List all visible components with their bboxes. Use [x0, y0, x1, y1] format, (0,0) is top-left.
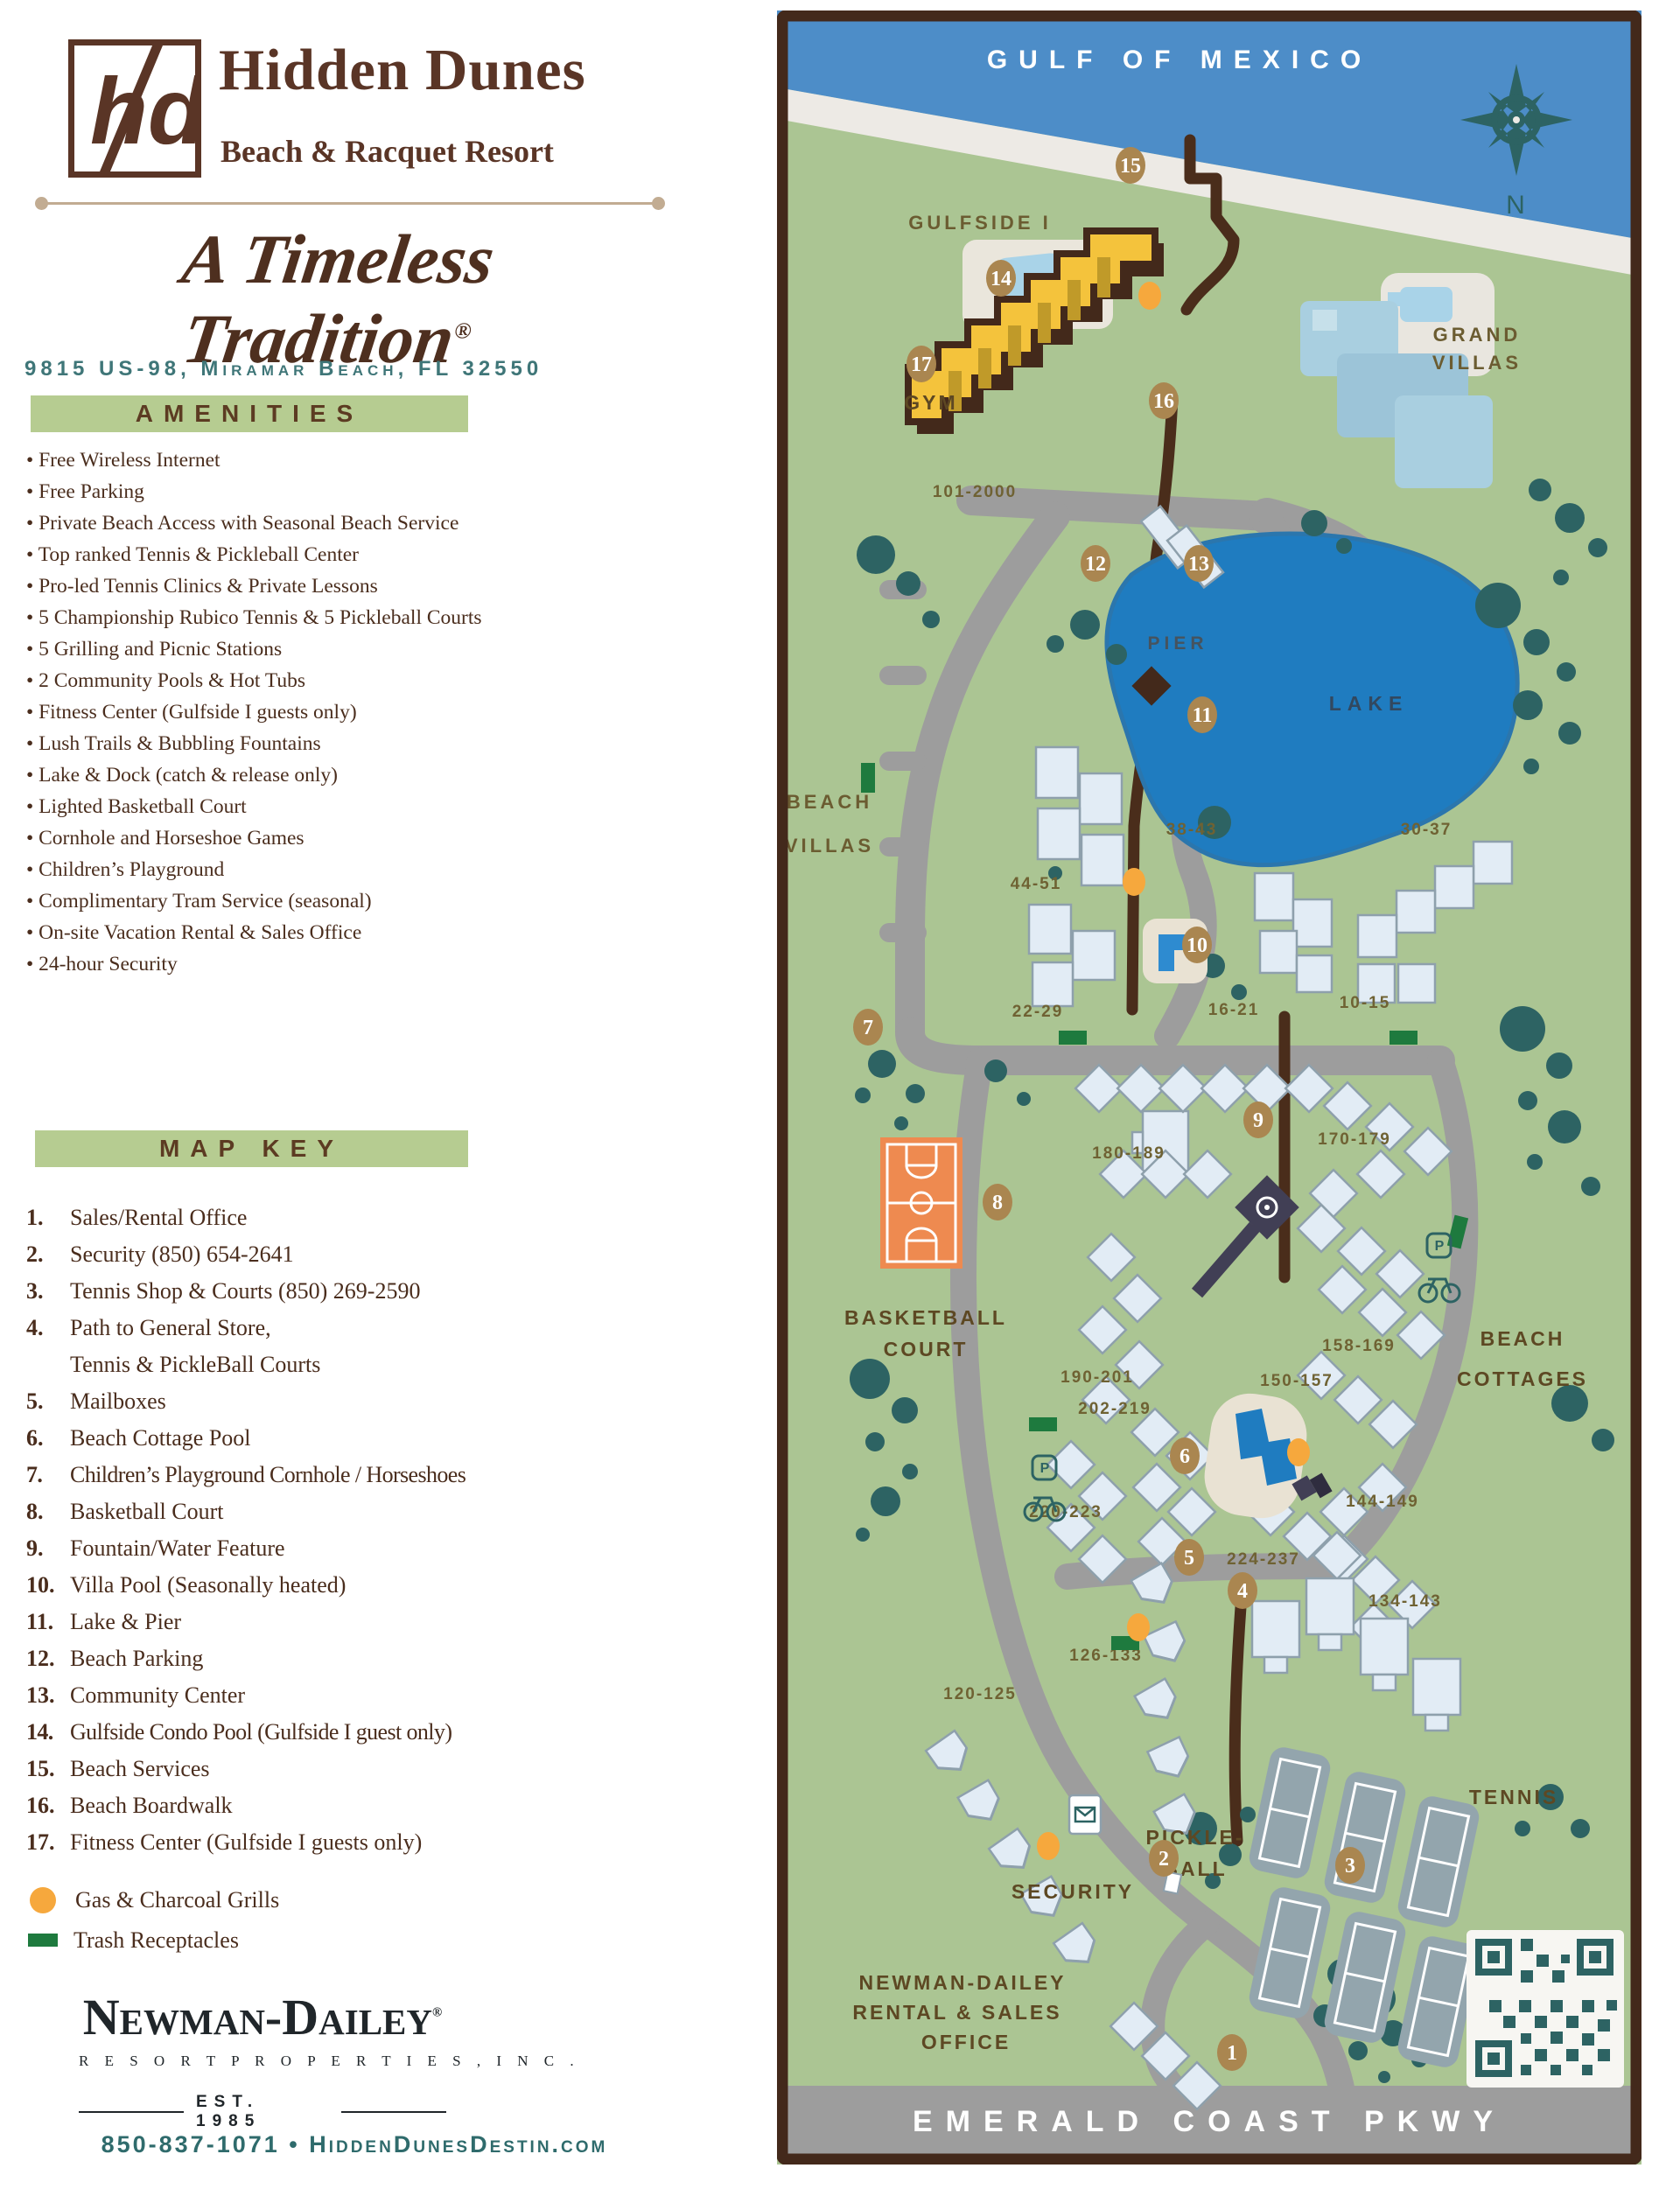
svg-text:2: 2: [1158, 1848, 1169, 1871]
map-key-item: 10.Villa Pool (Seasonally heated): [26, 1568, 534, 1605]
gym-label: GYM: [904, 391, 957, 414]
unit-range: 190-201: [1060, 1368, 1134, 1387]
amenity-item: Complimentary Tram Service (seasonal): [26, 885, 516, 917]
company-name: Newman-Dailey: [83, 1989, 432, 2046]
est-line-right: [341, 2111, 446, 2113]
svg-text:11: 11: [1193, 704, 1213, 727]
basketball-court: [880, 1137, 962, 1269]
svg-text:8: 8: [992, 1192, 1003, 1214]
svg-text:7: 7: [863, 1017, 873, 1039]
map-marker-5: 5: [1174, 1539, 1204, 1576]
unit-range: 224-237: [1227, 1550, 1300, 1569]
amenity-item: Lake & Dock (catch & release only): [26, 759, 516, 791]
map-marker-2: 2: [1149, 1840, 1179, 1877]
basketball-label: BASKETBALL: [844, 1306, 1007, 1329]
amenity-item: Pro-led Tennis Clinics & Private Lessons: [26, 570, 516, 602]
svg-text:4: 4: [1237, 1580, 1248, 1603]
unit-range: 120-125: [943, 1685, 1017, 1703]
map-key-list: 1.Sales/Rental Office 2.Security (850) 6…: [26, 1200, 534, 1862]
unit-range: 202-219: [1078, 1400, 1151, 1418]
footer-company: Newman-Dailey®: [79, 1988, 446, 2046]
grand-villas-label2: VILLAS: [1432, 352, 1522, 374]
monogram-letters: hd: [90, 58, 195, 164]
map-marker-9: 9: [1243, 1101, 1273, 1138]
est-text: EST. 1985: [196, 2093, 329, 2131]
gulf-label: GULF OF MEXICO: [987, 45, 1372, 74]
map-key-item: 3.Tennis Shop & Courts (850) 269-2590: [26, 1274, 534, 1311]
map-marker-8: 8: [983, 1184, 1012, 1220]
unit-range: 150-157: [1260, 1372, 1333, 1390]
tennis-label: TENNIS: [1469, 1786, 1558, 1808]
hd-monogram-icon: hd: [74, 45, 195, 171]
map-key-item: 14.Gulfside Condo Pool (Gulfside I guest…: [26, 1715, 534, 1752]
map-key-item: 6.Beach Cottage Pool: [26, 1421, 534, 1458]
registered-mark: ®: [452, 318, 473, 343]
registered-mark: ®: [432, 2006, 442, 2020]
office-label: NEWMAN-DAILEY: [858, 1971, 1066, 1994]
map-marker-3: 3: [1335, 1847, 1365, 1884]
unit-range: 101-2000: [933, 483, 1017, 501]
lake-label: LAKE: [1329, 692, 1409, 715]
est-line-left: [79, 2111, 184, 2113]
unit-range: 170-179: [1318, 1130, 1391, 1149]
compass-north-label: N: [1506, 191, 1527, 220]
footer-contact: 850-837-1071 • HiddenDunesDestin.com: [9, 2131, 700, 2158]
grill-icon: [30, 1887, 56, 1913]
svg-text:5: 5: [1184, 1547, 1194, 1570]
map-key-item: 12.Beach Parking: [26, 1641, 534, 1678]
divider-line: [38, 202, 661, 205]
map-marker-1: 1: [1217, 2034, 1247, 2071]
basketball-label2: COURT: [884, 1338, 969, 1360]
beach-villas-label: BEACH: [787, 791, 872, 813]
amenity-item: Free Parking: [26, 476, 516, 507]
map-marker-4: 4: [1228, 1572, 1257, 1609]
map-key-header: MAP KEY: [35, 1130, 468, 1167]
unit-range: 30-37: [1401, 821, 1452, 839]
brand-subtitle: Beach & Racquet Resort: [220, 133, 710, 170]
brand-title: Hidden Dunes: [219, 37, 709, 104]
amenity-item: 2 Community Pools & Hot Tubs: [26, 665, 516, 696]
svg-text:16: 16: [1153, 390, 1174, 413]
amenities-list: Free Wireless Internet Free Parking Priv…: [26, 444, 516, 980]
amenity-item: Cornhole and Horseshoe Games: [26, 822, 516, 854]
beach-cottages-label: BEACH: [1480, 1327, 1565, 1350]
map-key-item: 4.Path to General Store,: [26, 1311, 534, 1347]
amenity-item: Free Wireless Internet: [26, 444, 516, 476]
pier-label: PIER: [1147, 633, 1207, 654]
map-key-item: 13.Community Center: [26, 1678, 534, 1715]
svg-text:6: 6: [1179, 1445, 1190, 1468]
unit-range: 44-51: [1011, 875, 1062, 893]
map-key-item-continuation: Tennis & PickleBall Courts: [26, 1347, 534, 1384]
map-marker-10: 10: [1182, 927, 1212, 963]
map-key-item: 1.Sales/Rental Office: [26, 1200, 534, 1237]
divider-dot-left: [35, 197, 48, 210]
amenity-item: 5 Championship Rubico Tennis & 5 Pickleb…: [26, 602, 516, 633]
legend-trash: Trash Receptacles: [26, 1921, 516, 1962]
unit-range: 180-189: [1092, 1144, 1165, 1163]
map-key-legend: Gas & Charcoal Grills Trash Receptacles: [26, 1881, 516, 1962]
grand-villas-label: GRAND: [1433, 324, 1522, 346]
svg-text:13: 13: [1188, 553, 1209, 576]
map-key-item: 9.Fountain/Water Feature: [26, 1531, 534, 1568]
map-key-item: 2.Security (850) 654-2641: [26, 1237, 534, 1274]
svg-text:12: 12: [1085, 553, 1106, 576]
amenity-item: Lighted Basketball Court: [26, 791, 516, 822]
legend-label: Trash Receptacles: [73, 1921, 239, 1962]
map-canvas: GULF OF MEXICO N EMERAL: [777, 10, 1641, 2165]
map-marker-13: 13: [1184, 545, 1214, 582]
qr-code: [1466, 1930, 1624, 2088]
amenity-item: 24-hour Security: [26, 948, 516, 980]
amenity-item: Private Beach Access with Seasonal Beach…: [26, 507, 516, 539]
amenity-item: Lush Trails & Bubbling Fountains: [26, 728, 516, 759]
amenity-item: Children’s Playground: [26, 854, 516, 885]
office-label3: OFFICE: [921, 2031, 1011, 2053]
unit-range: 10-15: [1340, 994, 1391, 1012]
map-marker-15: 15: [1116, 147, 1145, 184]
resort-map-page: hd Hidden Dunes Beach & Racquet Resort A…: [0, 0, 1680, 2203]
unit-range: 158-169: [1322, 1337, 1396, 1355]
map-key-item: 8.Basketball Court: [26, 1494, 534, 1531]
map-key-item: 5.Mailboxes: [26, 1384, 534, 1421]
unit-range: 16-21: [1208, 1001, 1260, 1019]
trash-icon: [28, 1934, 58, 1947]
unit-range: 144-149: [1346, 1493, 1419, 1511]
map-key-item: 7.Children’s Playground Cornhole / Horse…: [26, 1458, 534, 1494]
map-marker-16: 16: [1149, 382, 1179, 419]
resort-map: GULF OF MEXICO N EMERAL: [777, 10, 1641, 2165]
amenity-item: 5 Grilling and Picnic Stations: [26, 633, 516, 665]
amenity-item: Fitness Center (Gulfside I guests only): [26, 696, 516, 728]
divider-dot-right: [652, 197, 665, 210]
unit-range: 134-143: [1368, 1592, 1442, 1611]
parking-icon-letter: P: [1435, 1239, 1445, 1254]
parking-icon-letter: P: [1040, 1461, 1050, 1476]
svg-text:17: 17: [911, 353, 932, 376]
office-label2: RENTAL & SALES: [852, 2001, 1061, 2024]
map-key-item: 15.Beach Services: [26, 1752, 534, 1788]
security-label: SECURITY: [1011, 1880, 1134, 1903]
footer-company-subtitle: R E S O R T P R O P E R T I E S , I N C …: [79, 2053, 446, 2070]
tagline-text: A Timeless Tradition: [178, 221, 499, 378]
footer-established: EST. 1985: [79, 2093, 446, 2131]
map-marker-12: 12: [1081, 545, 1110, 582]
map-marker-11: 11: [1187, 696, 1217, 733]
amenity-item: On-site Vacation Rental & Sales Office: [26, 917, 516, 948]
map-marker-6: 6: [1170, 1437, 1200, 1474]
unit-range: 22-29: [1012, 1003, 1064, 1021]
map-key-item: 11.Lake & Pier: [26, 1605, 534, 1641]
svg-text:10: 10: [1186, 934, 1207, 957]
map-key-item: 16.Beach Boardwalk: [26, 1788, 534, 1825]
svg-text:9: 9: [1253, 1109, 1263, 1132]
gulfside-label: GULFSIDE I: [908, 212, 1051, 234]
svg-text:15: 15: [1120, 155, 1141, 178]
parkway-label: EMERALD COAST PKWY: [913, 2105, 1506, 2138]
beach-villas-label2: VILLAS: [785, 835, 874, 857]
map-marker-7: 7: [853, 1009, 883, 1046]
brand-tagline: A Timeless Tradition®: [15, 220, 650, 380]
resort-address: 9815 US-98, Miramar Beach, FL 32550: [24, 357, 584, 381]
mailbox-kiosk-icon: [1069, 1795, 1101, 1834]
svg-text:14: 14: [990, 268, 1011, 290]
beach-cottages-label2: COTTAGES: [1457, 1367, 1588, 1390]
svg-text:1: 1: [1227, 2042, 1237, 2065]
map-marker-17: 17: [906, 346, 936, 382]
legend-label: Gas & Charcoal Grills: [75, 1881, 279, 1921]
unit-range: 38-43: [1166, 821, 1218, 839]
legend-grills: Gas & Charcoal Grills: [26, 1881, 516, 1921]
map-marker-14: 14: [986, 260, 1016, 297]
amenities-header: AMENITIES: [31, 395, 468, 432]
brand-monogram-box: hd: [68, 39, 201, 178]
amenity-item: Top ranked Tennis & Pickleball Center: [26, 539, 516, 570]
svg-text:3: 3: [1345, 1855, 1355, 1878]
map-key-item: 17.Fitness Center (Gulfside I guests onl…: [26, 1825, 534, 1862]
